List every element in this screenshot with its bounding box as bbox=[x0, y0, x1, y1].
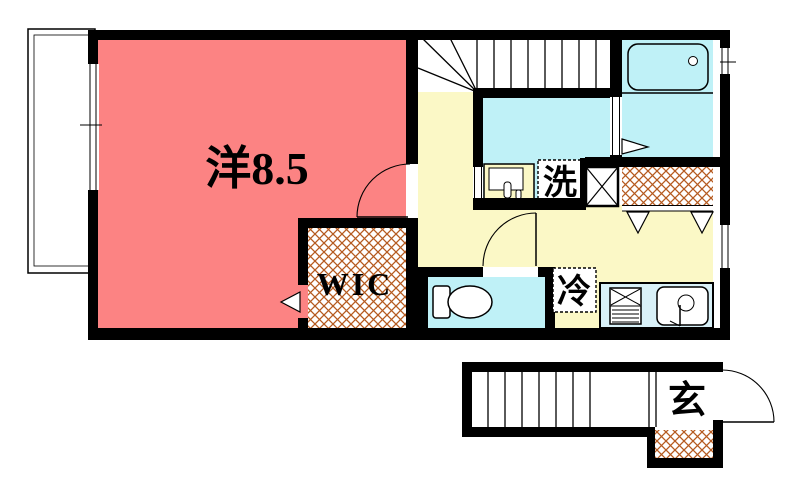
kitchen-sink-icon bbox=[657, 287, 708, 326]
winder-step-line bbox=[450, 38, 477, 92]
faucet-icon bbox=[504, 182, 511, 198]
winder-step-line bbox=[418, 68, 477, 92]
staircase-2f bbox=[418, 38, 596, 92]
wall-wic-top bbox=[298, 218, 418, 228]
wall-wic-left bbox=[298, 318, 308, 330]
wall-washroom-left bbox=[473, 98, 483, 167]
faucet-icon bbox=[516, 190, 521, 199]
window-left bbox=[80, 64, 102, 190]
wall-wic-left bbox=[298, 228, 308, 285]
entrance-label: 玄 bbox=[668, 380, 706, 422]
floor-plan: 洋8.5 WIC 洗 冷 玄 bbox=[0, 0, 797, 494]
bathtub-icon bbox=[628, 44, 708, 90]
wall-left bbox=[88, 30, 98, 66]
wall-entry-left bbox=[462, 362, 472, 437]
toilet bbox=[433, 286, 492, 318]
wall-right bbox=[720, 30, 730, 48]
wall-bathroom-left bbox=[610, 30, 622, 97]
refrigerator-label: 冷 bbox=[557, 273, 591, 311]
wall-porch-bottom bbox=[647, 458, 723, 468]
bathtub-drain-icon bbox=[689, 57, 698, 66]
balcony-outer-rail bbox=[28, 29, 95, 273]
pipe-space-box bbox=[586, 167, 618, 206]
staircase-1f bbox=[488, 372, 656, 427]
wall-toilet-left bbox=[418, 267, 428, 328]
stove-icon bbox=[610, 288, 641, 324]
entrance-1f bbox=[462, 362, 774, 468]
wall-entry-bottom bbox=[462, 427, 652, 437]
wall-porch-right bbox=[713, 420, 723, 468]
bathroom bbox=[622, 44, 713, 93]
entrance-door-arc bbox=[722, 370, 774, 422]
bedroom-door-opening bbox=[406, 164, 418, 218]
winder-step-line bbox=[422, 38, 477, 92]
window-right-bottom bbox=[719, 225, 731, 268]
balcony bbox=[28, 29, 95, 273]
balcony-inner-rail bbox=[34, 35, 95, 266]
toilet-bowl-icon bbox=[448, 286, 492, 318]
laundry-label: 洗 bbox=[543, 164, 577, 202]
wic-label: WIC bbox=[317, 266, 394, 302]
closet-hatch-floor bbox=[622, 167, 713, 205]
wall-right bbox=[720, 74, 730, 225]
hall-floor-west bbox=[418, 92, 477, 267]
toilet-door-opening bbox=[483, 267, 538, 277]
window-right-top bbox=[719, 48, 736, 74]
kitchen bbox=[600, 283, 713, 328]
wall-stairs-bottom bbox=[473, 88, 622, 98]
wall-bathroom-bottom bbox=[585, 157, 730, 167]
bedroom-label: 洋8.5 bbox=[205, 143, 309, 194]
porch-hatch-floor bbox=[655, 430, 713, 458]
wall-right bbox=[720, 268, 730, 340]
wall-bedroom-hall bbox=[406, 218, 418, 330]
wall-left bbox=[88, 190, 98, 340]
wall-bedroom-hall bbox=[406, 30, 418, 164]
bathroom-door-opening bbox=[610, 97, 622, 155]
wall-entry-top bbox=[462, 362, 723, 372]
